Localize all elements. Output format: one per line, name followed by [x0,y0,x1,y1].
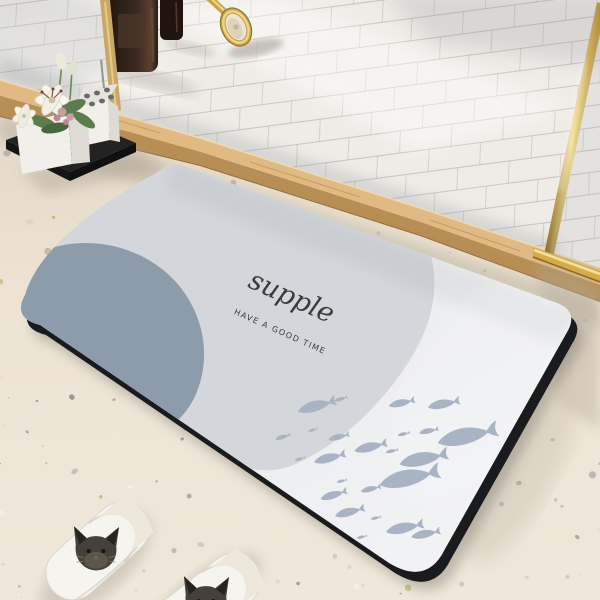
bottle-label [118,14,144,48]
bathroom-photo: supple HAVE A GOOD TIME [0,0,600,600]
shampoo-bottle-small [160,0,183,40]
bottle-highlight-2 [176,2,177,32]
scene-canvas: supple HAVE A GOOD TIME [0,0,600,600]
bottle-highlight [152,8,153,62]
